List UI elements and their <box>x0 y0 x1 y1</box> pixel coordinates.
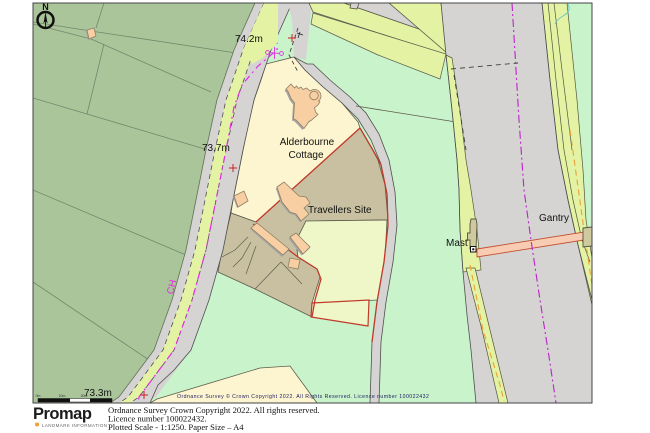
svg-text:Promap: Promap <box>33 405 92 423</box>
svg-text:Travellers Site: Travellers Site <box>308 205 372 216</box>
svg-text:Gantry: Gantry <box>539 213 569 224</box>
svg-text:20m: 20m <box>81 394 88 398</box>
svg-text:Mast: Mast <box>446 238 468 249</box>
svg-text:Alderbourne: Alderbourne <box>280 137 335 148</box>
svg-text:73.7m: 73.7m <box>202 143 230 154</box>
svg-text:73.3m: 73.3m <box>84 388 112 399</box>
svg-text:0m: 0m <box>36 394 41 398</box>
svg-text:Ordnance Survey © Crown Copyri: Ordnance Survey © Crown Copyright 2022. … <box>177 393 429 400</box>
svg-text:Cottage: Cottage <box>288 150 323 161</box>
svg-text:74.2m: 74.2m <box>235 34 263 45</box>
svg-text:10m: 10m <box>59 394 66 398</box>
svg-text:Plotted Scale - 1:1250. Paper: Plotted Scale - 1:1250. Paper Size – A4 <box>108 422 244 432</box>
svg-text:LANDMARK INFORMATION: LANDMARK INFORMATION <box>42 423 107 428</box>
